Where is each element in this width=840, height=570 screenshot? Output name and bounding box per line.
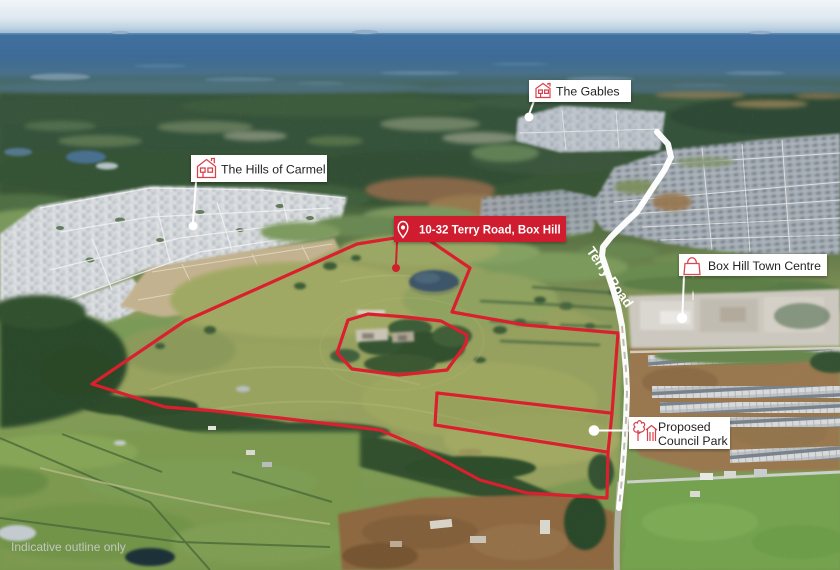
- svg-text:Proposed: Proposed: [658, 420, 711, 434]
- svg-text:10-32 Terry Road, Box Hill: 10-32 Terry Road, Box Hill: [419, 225, 561, 237]
- svg-text:Council Park: Council Park: [658, 434, 729, 448]
- svg-text:Indicative outline only: Indicative outline only: [11, 540, 126, 554]
- svg-text:Box Hill Town Centre: Box Hill Town Centre: [708, 259, 821, 273]
- svg-text:The Hills of Carmel: The Hills of Carmel: [221, 163, 326, 177]
- svg-text:The Gables: The Gables: [556, 85, 620, 99]
